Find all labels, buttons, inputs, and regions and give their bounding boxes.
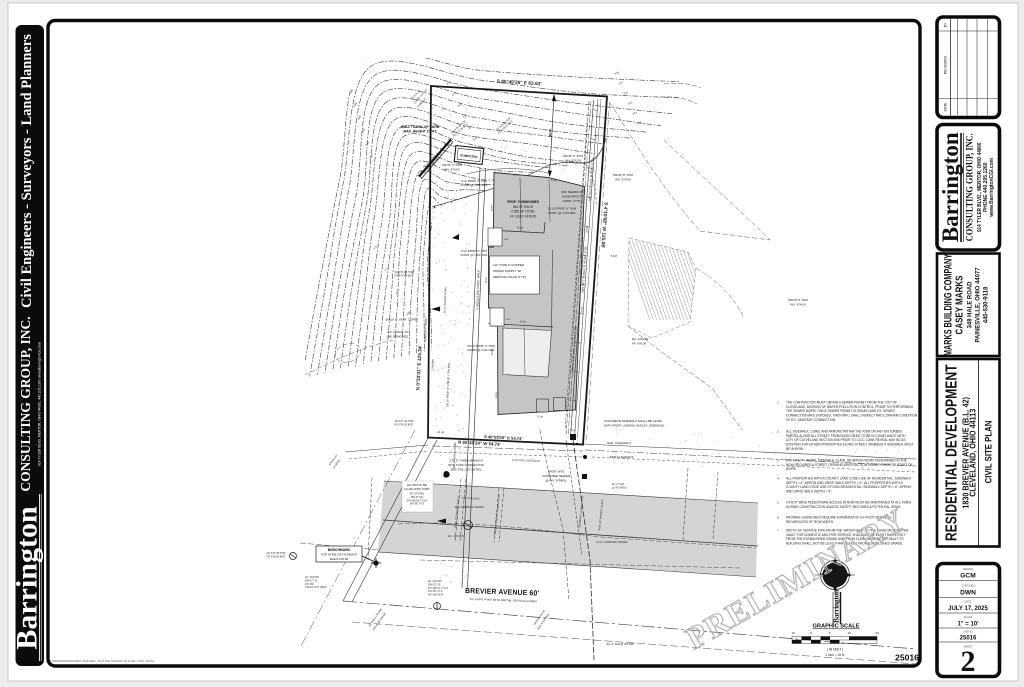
- svg-text:Civil Engineers - Surveyors -: Civil Engineers - Surveyors - Land Plann…: [19, 34, 35, 308]
- svg-text:WITH PROP. LANDING AND EX. SID: WITH PROP. LANDING AND EX. SIDEWALK: [604, 423, 665, 427]
- svg-text:PROP. 6" STM: PROP. 6" STM: [442, 163, 462, 167]
- svg-text:PROP. 8" STM: PROP. 8" STM: [613, 173, 633, 177]
- svg-text:10: 10: [791, 631, 795, 635]
- svg-text:6.: 6.: [777, 516, 780, 520]
- svg-text:CONN. (TYP.): CONN. (TYP.): [563, 199, 582, 203]
- svg-text:INV. 674.00: INV. 674.00: [615, 177, 631, 181]
- svg-text:1.0% MIN.: 1.0% MIN.: [430, 358, 434, 371]
- svg-text:PROP. TOWNHOMES: PROP. TOWNHOMES: [507, 200, 539, 204]
- svg-text:38.00': 38.00': [580, 307, 583, 314]
- svg-text:Barrington: Barrington: [11, 506, 44, 650]
- svg-text:BE IN ROW.: BE IN ROW.: [786, 447, 804, 451]
- svg-text:4.00': 4.00': [506, 319, 511, 321]
- svg-text:BE REMOVED: BE REMOVED: [388, 334, 409, 338]
- svg-text:2.: 2.: [777, 430, 780, 434]
- svg-text:ELEV 678.28: ELEV 678.28: [330, 557, 349, 561]
- svg-text:EX. GROUND: EX. GROUND: [462, 496, 480, 501]
- svg-text:DOWNSPOUT: DOWNSPOUT: [562, 194, 582, 198]
- svg-text:25016: 25016: [895, 653, 919, 663]
- svg-text:1LF TYPE K COPPER: 1LF TYPE K COPPER: [493, 263, 525, 267]
- svg-text:3.: 3.: [777, 459, 780, 463]
- svg-text:1" = 10': 1" = 10': [957, 622, 979, 628]
- svg-text:INV. 674.00: INV. 674.00: [790, 302, 806, 306]
- svg-text:DWN: DWN: [960, 590, 976, 597]
- svg-text:SERVICE VALVE (TYP.): SERVICE VALVE (TYP.): [493, 275, 526, 279]
- svg-text:FG 676.56 BOT: FG 676.56 BOT: [267, 555, 286, 559]
- svg-text:WATER SUPPLY W/: WATER SUPPLY W/: [493, 269, 521, 273]
- svg-text:1.: 1.: [777, 401, 780, 405]
- svg-text:AND DRIVE WALK DEPTH = 8".: AND DRIVE WALK DEPTH = 8".: [786, 490, 832, 494]
- svg-text:18.00': 18.00': [495, 391, 498, 398]
- svg-text:851 SF EACH: 851 SF EACH: [513, 205, 534, 209]
- svg-text:Barrington: Barrington: [938, 132, 963, 242]
- svg-text:COMBINED SEWER: COMBINED SEWER: [542, 474, 571, 478]
- svg-text:REVISIONS: REVISIONS: [944, 55, 948, 74]
- svg-text:7.: 7.: [777, 529, 780, 533]
- svg-text:PROP. WYE: PROP. WYE: [548, 470, 565, 474]
- svg-text:WORK.: WORK.: [786, 467, 797, 471]
- svg-text:4.: 4.: [777, 477, 780, 481]
- svg-text:25016: 25016: [960, 636, 977, 642]
- svg-text:DOWN @ 1.0% MIN.: DOWN @ 1.0% MIN.: [467, 348, 494, 352]
- svg-text:TOP STEM OF HYDRANT: TOP STEM OF HYDRANT: [321, 553, 358, 557]
- svg-text:GRAPHIC SCALE: GRAPHIC SCALE: [812, 624, 859, 630]
- svg-text:DATE: DATE: [944, 102, 948, 112]
- svg-text:INV. 674.00: INV. 674.00: [565, 158, 581, 162]
- svg-text:CITY OF CLEVELAND SECTION 506: CITY OF CLEVELAND SECTION 506 PRIOR TO C…: [786, 438, 906, 442]
- svg-text:FF. 678.06: FF. 678.06: [632, 342, 646, 346]
- svg-text:348 HALE ROAD: 348 HALE ROAD: [966, 281, 973, 328]
- svg-text:INV 667.47-S: INV 667.47-S: [410, 503, 425, 506]
- svg-text:JOB NO.: JOB NO.: [963, 630, 974, 634]
- svg-text:COULD NOT OPEN: COULD NOT OPEN: [305, 586, 327, 589]
- svg-text:CONSULTING GROUP, INC.: CONSULTING GROUP, INC.: [964, 133, 975, 241]
- svg-text:SAN. CLEANOUT: SAN. CLEANOUT: [607, 441, 631, 445]
- svg-text:45.00': 45.00': [520, 320, 527, 323]
- svg-text:15.00': 15.00': [537, 415, 544, 418]
- svg-text:EX. FENCE TO: EX. FENCE TO: [388, 330, 409, 334]
- svg-text:WALL / BACK OF CURB: WALL / BACK OF CURB: [401, 125, 440, 129]
- svg-text:K:\2025\25016\DWG\25016-SITE.D: K:\2025\25016\DWG\25016-SITE.DWG - PLOTT…: [50, 659, 154, 663]
- svg-text:OF EX. SANITARY CONNECTION.: OF EX. SANITARY CONNECTION.: [786, 418, 836, 422]
- svg-text:F.F. ELEV +678.00: F.F. ELEV +678.00: [510, 214, 537, 218]
- svg-text:ROW REQUIRES A STREET OPENING/: ROW REQUIRES A STREET OPENING/OBSTRUCTIO…: [786, 463, 912, 467]
- svg-text:CASEY MARKS: CASEY MARKS: [954, 276, 965, 335]
- svg-text:45.00': 45.00': [517, 226, 524, 229]
- svg-text:ALL PROPERTIES WITH A COUNTY L: ALL PROPERTIES WITH A COUNTY LAND CODE U…: [786, 477, 912, 481]
- svg-text:EX. COMBINED SEWER: EX. COMBINED SEWER: [455, 505, 484, 509]
- svg-text:366 TEE/ROOF: 366 TEE/ROOF: [561, 190, 582, 194]
- svg-text:@ INV 668.92: @ INV 668.92: [612, 486, 628, 489]
- svg-text:20: 20: [875, 631, 879, 635]
- svg-text:DATE: DATE: [965, 600, 972, 604]
- svg-text:30.04': 30.04': [437, 430, 445, 434]
- svg-text:50&LF 6" VERT. CURB: 50&LF 6" VERT. CURB: [385, 318, 416, 322]
- svg-text:18.00': 18.00': [490, 204, 493, 211]
- svg-text:10: 10: [847, 631, 851, 635]
- svg-text:GCM: GCM: [960, 573, 976, 580]
- svg-text:EX. GROUND: EX. GROUND: [448, 534, 465, 538]
- svg-text:CLEVELAND, OHIO 44113: CLEVELAND, OHIO 44113: [968, 409, 977, 497]
- svg-text:THE SEWER WORK. ONCE SEWER PER: THE SEWER WORK. ONCE SEWER PERMIT IS ISS…: [786, 409, 896, 413]
- svg-text:INV 668.04-W: INV 668.04-W: [428, 594, 444, 597]
- svg-text:FG 676.58 BOT: FG 676.58 BOT: [395, 274, 414, 278]
- svg-text:2: 2: [961, 645, 976, 678]
- svg-text:CIVIL SITE PLAN: CIVIL SITE PLAN: [983, 421, 994, 484]
- svg-text:FG 676.92 BOT: FG 676.92 BOT: [395, 423, 414, 427]
- svg-text:914 TYLER BLVD, MENTOR, OHIO 4: 914 TYLER BLVD, MENTOR, OHIO 44060, 440.…: [38, 342, 42, 466]
- svg-text:EXISTING FOR OTHER PROPERTIES: EXISTING FOR OTHER PROPERTIES ALONG STRE…: [786, 443, 913, 447]
- svg-text:5.00': 5.00': [611, 254, 618, 258]
- svg-text:CONN. @ 1.0% MIN.: CONN. @ 1.0% MIN.: [460, 253, 488, 257]
- svg-text:30.08': 30.08': [548, 129, 552, 138]
- svg-text:BY: BY: [944, 22, 948, 27]
- svg-text:CONSULTING GROUP, INC.: CONSULTING GROUP, INC.: [18, 316, 33, 491]
- svg-text:@ INV. 675/65L: @ INV. 675/65L: [545, 478, 566, 482]
- svg-text:INV. 674.00: INV. 674.00: [444, 167, 460, 171]
- svg-text:440-530-9118: 440-530-9118: [982, 286, 989, 323]
- svg-text:ANY UTILITY WORK, SIDEWALK, CU: ANY UTILITY WORK, SIDEWALK, CURB, OR APR…: [786, 459, 907, 463]
- svg-text:THE CONTRACTOR MUST OBTAIN A S: THE CONTRACTOR MUST OBTAIN A SEWER PERMI…: [786, 401, 897, 405]
- svg-text:COUNTY LAND CODE USE OF NON-RE: COUNTY LAND CODE USE OF NON-RESIDENTIAL:…: [786, 485, 912, 489]
- svg-text:PAINESVILLE, OHIO 44077: PAINESVILLE, OHIO 44077: [974, 267, 981, 342]
- svg-text:15.00': 15.00': [513, 173, 520, 176]
- svg-text:EX. 8" SAN @ INV 668: EX. 8" SAN @ INV 668: [607, 642, 634, 646]
- svg-text:FG 677.08 TOP: FG 677.08 TOP: [395, 270, 414, 274]
- svg-text:PROP. 6" STM: PROP. 6" STM: [563, 154, 583, 158]
- svg-text:FG 677.06 TOP: FG 677.06 TOP: [267, 551, 286, 555]
- svg-text:DRAWN: DRAWN: [963, 567, 973, 571]
- svg-text:STM CLEANOUT: STM CLEANOUT: [610, 455, 634, 459]
- svg-text:JULY 17, 2025: JULY 17, 2025: [948, 606, 988, 612]
- svg-text:MAX. HEIGHT 3.0 FT: MAX. HEIGHT 3.0 FT: [404, 130, 438, 134]
- svg-text:REGARDLESS OF ROW WIDTH.: REGARDLESS OF ROW WIDTH.: [786, 520, 834, 524]
- svg-text:FLUSH WITH PVMT: FLUSH WITH PVMT: [404, 487, 430, 491]
- svg-text:4.00': 4.00': [504, 239, 509, 241]
- svg-text:MARKS BUILDING COMPANY: MARKS BUILDING COMPANY: [942, 253, 954, 356]
- svg-text:CHECKED: CHECKED: [962, 584, 975, 588]
- svg-text:31 LF COMBINED SEWER: 31 LF COMBINED SEWER: [596, 540, 628, 544]
- svg-text:38.00': 38.00': [585, 227, 588, 234]
- svg-text:CONCRETE SIDEWALK SHALL BE LEV: CONCRETE SIDEWALK SHALL BE LEVEL: [604, 419, 663, 423]
- svg-text:BENCHMARK: BENCHMARK: [328, 548, 351, 552]
- svg-text:CONN. @ 1.0% MIN.: CONN. @ 1.0% MIN.: [460, 183, 488, 187]
- svg-text:( IN FEET ): ( IN FEET ): [827, 648, 843, 652]
- svg-text:RESIDENTIAL DEVELOPMENT: RESIDENTIAL DEVELOPMENT: [943, 364, 961, 541]
- svg-text:5.: 5.: [777, 501, 780, 505]
- svg-text:ALL SIDEWALK, CURB, AND APRONS: ALL SIDEWALK, CURB, AND APRONS WITHIN TH…: [786, 430, 903, 434]
- svg-text:PROP. 6" SAN: PROP. 6" SAN: [788, 298, 808, 302]
- svg-text:2,555 SF TOTAL: 2,555 SF TOTAL: [511, 210, 535, 214]
- svg-text:12 LF PROP. 6" SAN: 12 LF PROP. 6" SAN: [548, 207, 576, 211]
- svg-text:CONN. @ 1.0% MIN.: CONN. @ 1.0% MIN.: [548, 211, 577, 215]
- svg-text:1 inch = 10 ft.: 1 inch = 10 ft.: [825, 653, 844, 657]
- svg-text:FG 677.42 TOP: FG 677.42 TOP: [395, 419, 414, 423]
- svg-text:SCALE: SCALE: [964, 615, 973, 619]
- svg-text:EX. HOUSE: EX. HOUSE: [632, 337, 649, 341]
- svg-text:www.BarringtonCGI.com: www.BarringtonCGI.com: [989, 157, 995, 218]
- svg-text:18.00': 18.00': [485, 276, 488, 283]
